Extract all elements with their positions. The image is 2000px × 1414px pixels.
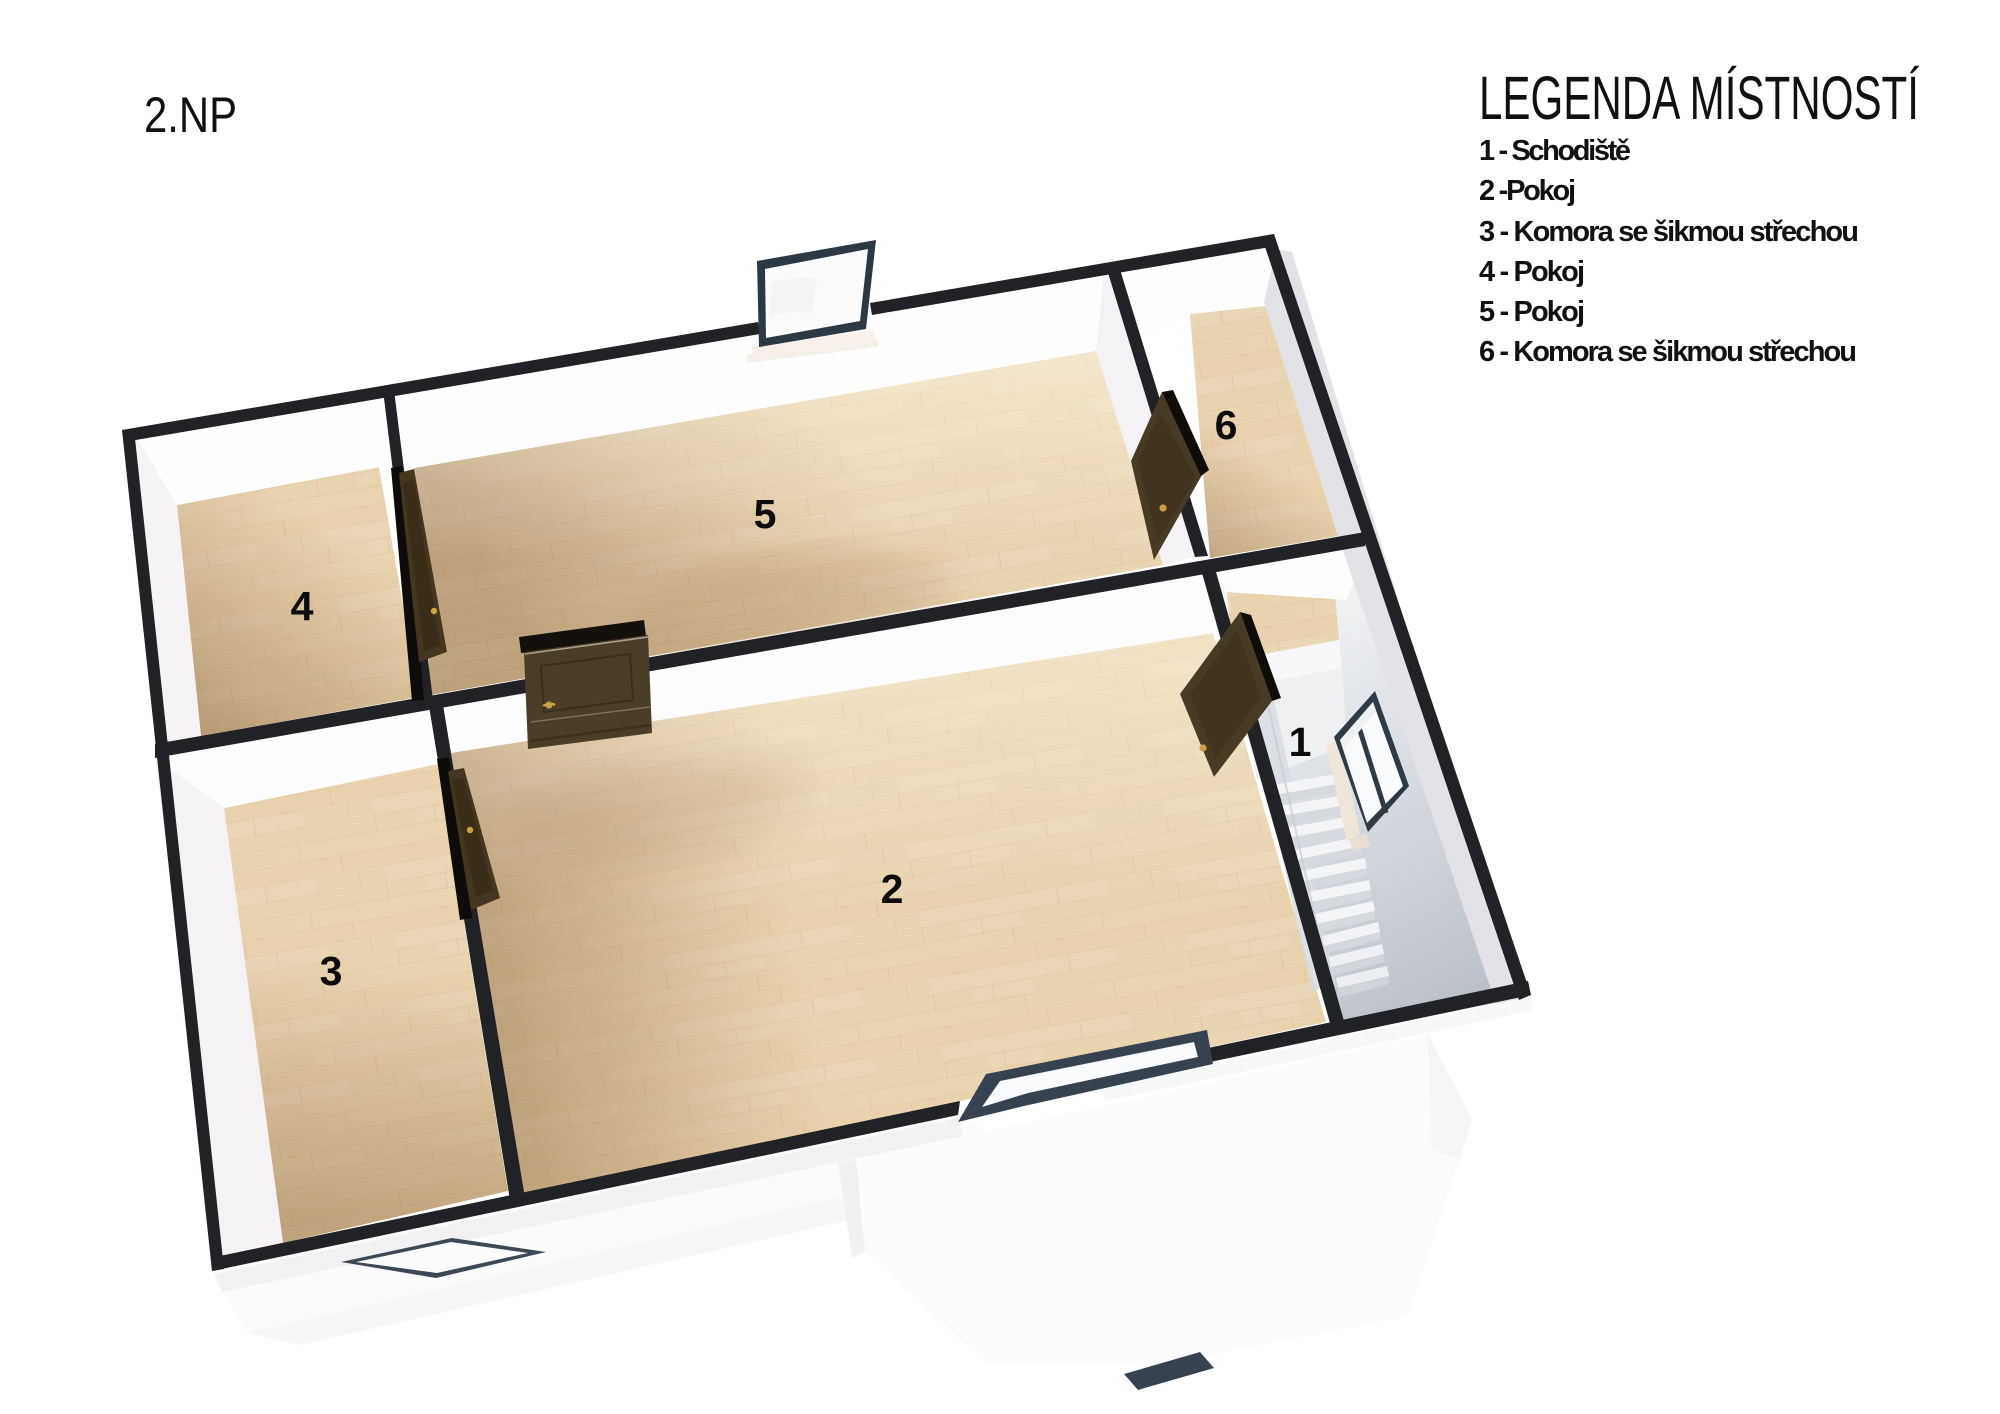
svg-text:4: 4 [291,583,314,629]
svg-text:2.NP: 2.NP [144,87,237,143]
svg-text:1 - Schodiště: 1 - Schodiště [1479,135,1631,167]
svg-text:3: 3 [320,948,343,994]
svg-text:2: 2 [881,866,904,912]
svg-text:6 - Komora se šikmou střechou: 6 - Komora se šikmou střechou [1479,336,1857,368]
svg-text:2 -Pokoj: 2 -Pokoj [1479,175,1576,207]
svg-text:LEGENDA MÍSTNOSTÍ: LEGENDA MÍSTNOSTÍ [1479,64,1919,132]
svg-text:1: 1 [1289,719,1312,765]
svg-text:5: 5 [754,491,777,537]
svg-text:5 - Pokoj: 5 - Pokoj [1479,296,1585,328]
svg-text:3 - Komora se šikmou střechou: 3 - Komora se šikmou střechou [1479,216,1859,248]
svg-text:4 - Pokoj: 4 - Pokoj [1479,256,1585,288]
svg-text:6: 6 [1215,402,1238,448]
